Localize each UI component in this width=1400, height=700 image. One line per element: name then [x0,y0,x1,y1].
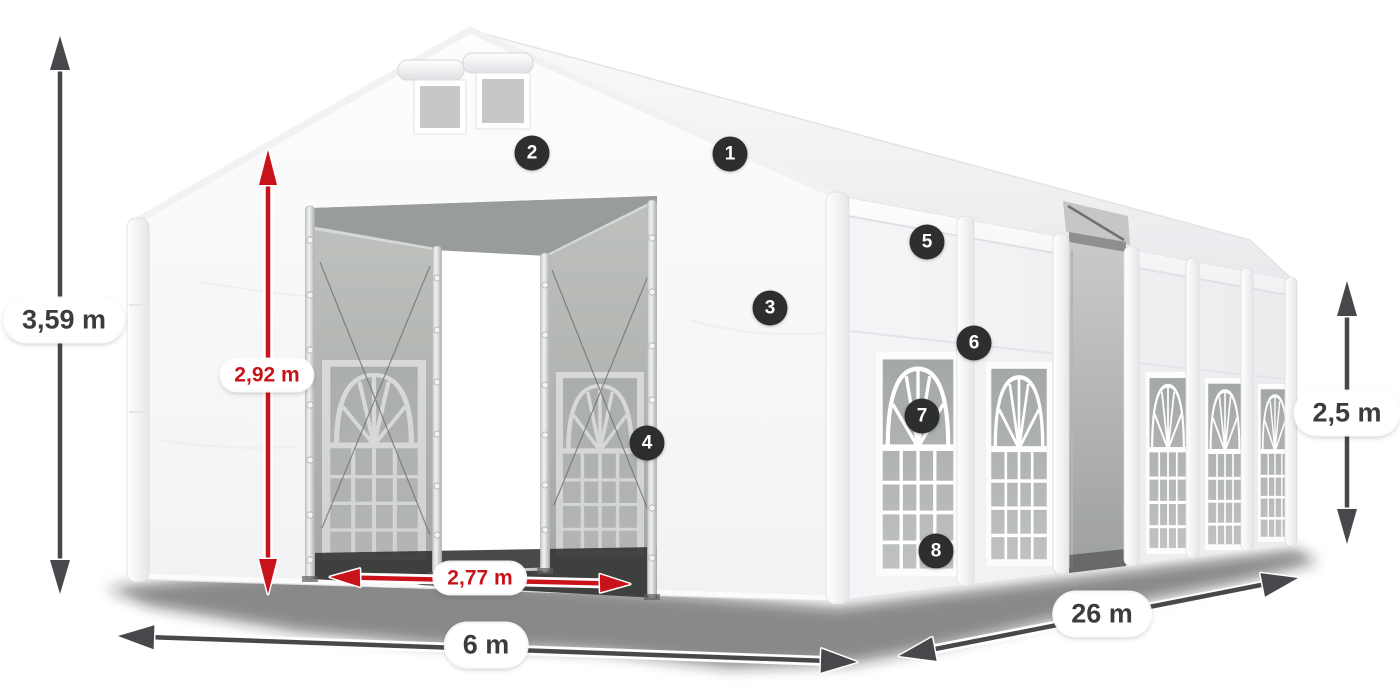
dimension-pill-side-height: 2,5 m [1295,392,1398,435]
callout-badge-5: 5 [910,225,945,260]
tent-illustration [0,0,1400,700]
front-right-corner-trim [826,192,849,604]
side-window-3 [1146,372,1190,554]
dimension-pill-entrance-height: 2,92 m [221,360,312,391]
tent-dimension-diagram: 3,59 m 2,92 m 2,77 m 6 m 26 m 2,5 m 1 2 … [0,0,1400,700]
side-window-4 [1205,378,1245,550]
side-doorway [1069,232,1126,573]
callout-badge-7: 7 [905,399,940,434]
dimension-pill-width: 6 m [446,624,527,667]
front-left-corner-trim [127,218,149,582]
entrance-see-through [433,250,548,574]
callout-badge-2: 2 [515,136,550,171]
callout-badge-1: 1 [713,137,748,172]
dimension-pill-entrance-width: 2,77 m [434,563,525,594]
callout-badge-4: 4 [630,426,665,461]
front-entrance [302,196,660,600]
callout-badge-8: 8 [919,534,954,569]
dimension-pill-length: 26 m [1054,593,1150,636]
dimension-pill-total-height: 3,59 m [5,299,123,342]
callout-badge-6: 6 [957,326,992,361]
side-window-2 [986,362,1052,566]
callout-badge-3: 3 [753,291,788,326]
